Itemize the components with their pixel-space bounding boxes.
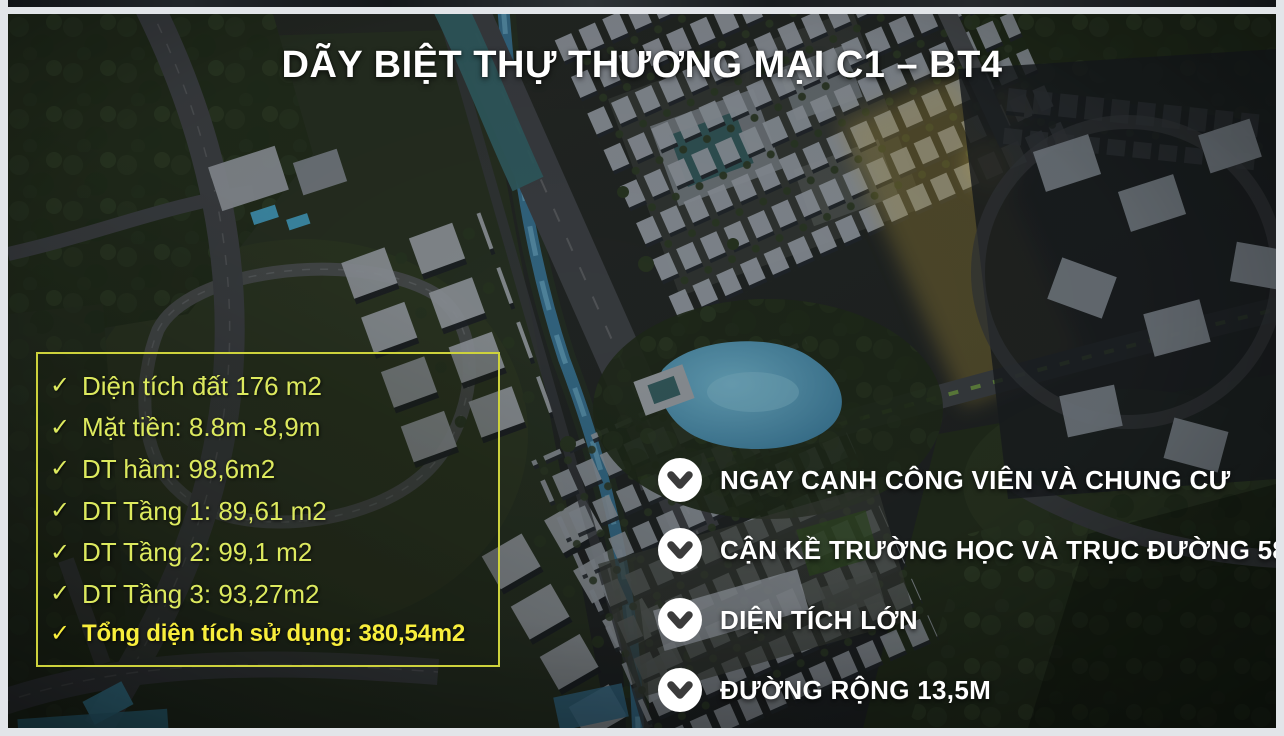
check-icon: ✓: [50, 499, 82, 523]
feature-item: ĐƯỜNG RỘNG 13,5M: [658, 668, 1276, 712]
feature-item-label: CẬN KỀ TRƯỜNG HỌC VÀ TRỤC ĐƯỜNG 58M: [720, 535, 1276, 566]
feature-item: DIỆN TÍCH LỚN: [658, 598, 1276, 642]
check-icon: ✓: [50, 416, 82, 440]
check-circle-icon: [658, 598, 702, 642]
spec-item-label: Diện tích đất 176 m2: [82, 371, 322, 402]
feature-item-label: ĐƯỜNG RỘNG 13,5M: [720, 675, 991, 706]
check-icon: ✓: [50, 582, 82, 606]
spec-item: ✓ Mặt tiền: 8.8m -8,9m: [50, 412, 494, 443]
spec-item-label: Mặt tiền: 8.8m -8,9m: [82, 412, 320, 443]
spec-item: ✓ Diện tích đất 176 m2: [50, 371, 494, 402]
slide: DÃY BIỆT THỰ THƯƠNG MẠI C1 – BT4 ✓ Diện …: [8, 14, 1276, 728]
spec-item-label: Tổng diện tích sử dụng: 380,54m2: [82, 620, 465, 648]
spec-item-label: DT hầm: 98,6m2: [82, 454, 275, 485]
check-circle-icon: [658, 668, 702, 712]
presentation-canvas: DÃY BIỆT THỰ THƯƠNG MẠI C1 – BT4 ✓ Diện …: [0, 0, 1284, 736]
feature-item-label: NGAY CẠNH CÔNG VIÊN VÀ CHUNG CƯ: [720, 465, 1231, 496]
spec-item: ✓ DT Tầng 3: 93,27m2: [50, 579, 494, 610]
slide-title: DÃY BIỆT THỰ THƯƠNG MẠI C1 – BT4: [8, 44, 1276, 87]
feature-item-label: DIỆN TÍCH LỚN: [720, 605, 918, 636]
check-icon: ✓: [50, 541, 82, 565]
spec-item-label: DT Tầng 3: 93,27m2: [82, 579, 320, 610]
spec-item-label: DT Tầng 1: 89,61 m2: [82, 496, 327, 527]
spec-item-total: ✓ Tổng diện tích sử dụng: 380,54m2: [50, 620, 494, 648]
spec-item: ✓ DT hầm: 98,6m2: [50, 454, 494, 485]
specs-panel: ✓ Diện tích đất 176 m2 ✓ Mặt tiền: 8.8m …: [36, 352, 500, 667]
check-icon: ✓: [50, 374, 82, 398]
features-list: NGAY CẠNH CÔNG VIÊN VÀ CHUNG CƯ CẬN KỀ T…: [658, 458, 1276, 712]
check-icon: ✓: [50, 457, 82, 481]
spec-item-label: DT Tầng 2: 99,1 m2: [82, 537, 312, 568]
check-icon: ✓: [50, 622, 82, 646]
spec-item: ✓ DT Tầng 1: 89,61 m2: [50, 496, 494, 527]
spec-item: ✓ DT Tầng 2: 99,1 m2: [50, 537, 494, 568]
feature-item: CẬN KỀ TRƯỜNG HỌC VÀ TRỤC ĐƯỜNG 58M: [658, 528, 1276, 572]
check-circle-icon: [658, 458, 702, 502]
check-circle-icon: [658, 528, 702, 572]
feature-item: NGAY CẠNH CÔNG VIÊN VÀ CHUNG CƯ: [658, 458, 1276, 502]
previous-slide-edge: [8, 0, 1276, 7]
